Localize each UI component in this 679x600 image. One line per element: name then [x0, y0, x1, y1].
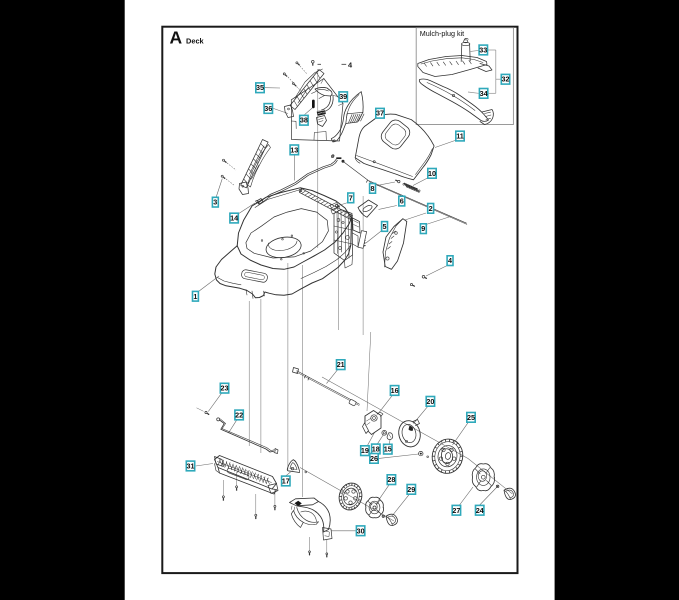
svg-text:18: 18: [372, 445, 380, 454]
svg-text:26: 26: [370, 454, 378, 463]
svg-text:38: 38: [300, 116, 308, 125]
svg-text:10: 10: [428, 169, 436, 178]
svg-text:29: 29: [407, 485, 415, 494]
svg-text:35: 35: [256, 83, 264, 92]
svg-text:30: 30: [357, 526, 365, 535]
svg-text:9: 9: [421, 224, 425, 233]
svg-text:14: 14: [230, 214, 238, 223]
svg-text:2: 2: [429, 204, 433, 213]
svg-text:22: 22: [235, 411, 243, 420]
svg-text:6: 6: [400, 197, 404, 206]
svg-text:A: A: [170, 27, 183, 47]
svg-text:27: 27: [452, 506, 460, 515]
svg-text:4: 4: [348, 60, 353, 69]
svg-text:34: 34: [480, 89, 488, 98]
svg-text:20: 20: [426, 397, 434, 406]
svg-text:21: 21: [337, 360, 345, 369]
svg-text:15: 15: [384, 445, 392, 454]
svg-text:25: 25: [467, 413, 475, 422]
svg-text:39: 39: [339, 92, 347, 101]
svg-text:3: 3: [213, 198, 217, 207]
svg-text:Mulch-plug kit: Mulch-plug kit: [420, 29, 464, 38]
svg-text:36: 36: [264, 104, 272, 113]
svg-text:4: 4: [448, 256, 452, 265]
svg-text:13: 13: [290, 145, 298, 154]
svg-text:19: 19: [361, 446, 369, 455]
svg-text:1: 1: [193, 292, 197, 301]
svg-text:37: 37: [376, 109, 384, 118]
svg-text:28: 28: [387, 475, 395, 484]
svg-text:31: 31: [187, 462, 195, 471]
svg-text:16: 16: [391, 386, 399, 395]
svg-text:8: 8: [371, 184, 375, 193]
svg-text:32: 32: [502, 75, 510, 84]
svg-text:23: 23: [221, 384, 229, 393]
svg-text:5: 5: [383, 222, 387, 231]
svg-text:17: 17: [282, 477, 290, 486]
svg-text:7: 7: [349, 193, 353, 202]
svg-text:24: 24: [476, 506, 484, 515]
svg-text:33: 33: [479, 46, 487, 55]
svg-text:11: 11: [456, 132, 464, 141]
svg-text:Deck: Deck: [186, 36, 205, 45]
